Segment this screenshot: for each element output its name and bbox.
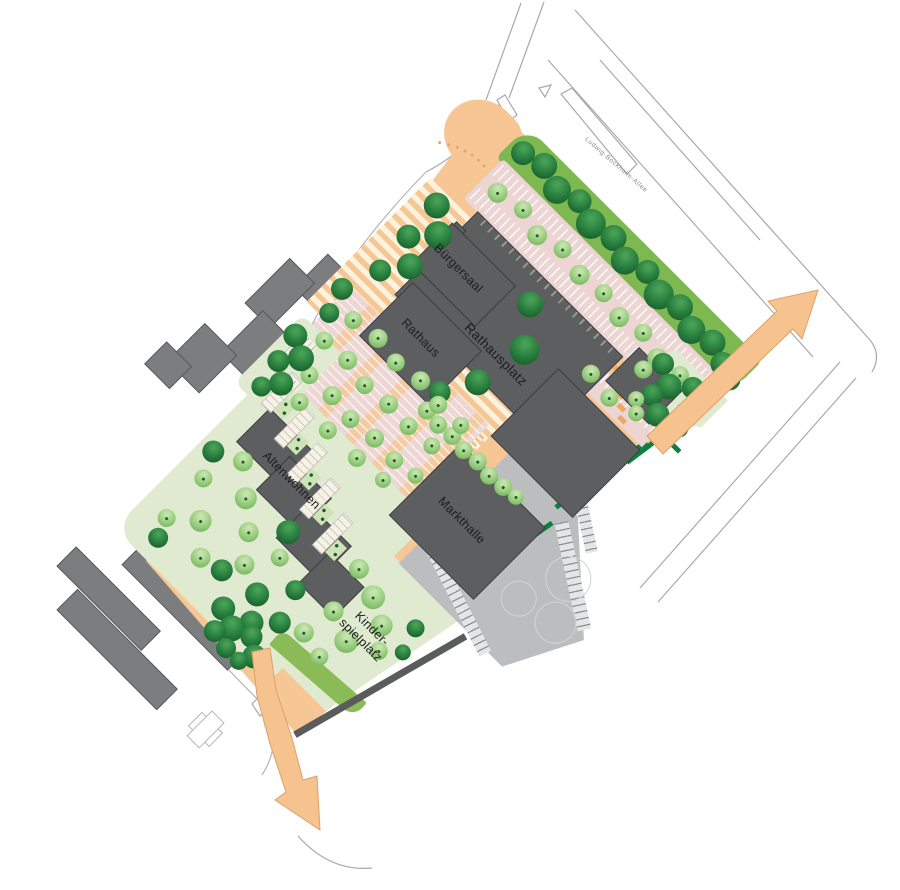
- circulation-arrows: [0, 0, 900, 890]
- site-plan-canvas: Bürgersaal Rathaus Rathausplatz Markthal…: [0, 0, 900, 890]
- northeast-access-arrow: [647, 290, 818, 454]
- south-access-arrow: [252, 648, 320, 830]
